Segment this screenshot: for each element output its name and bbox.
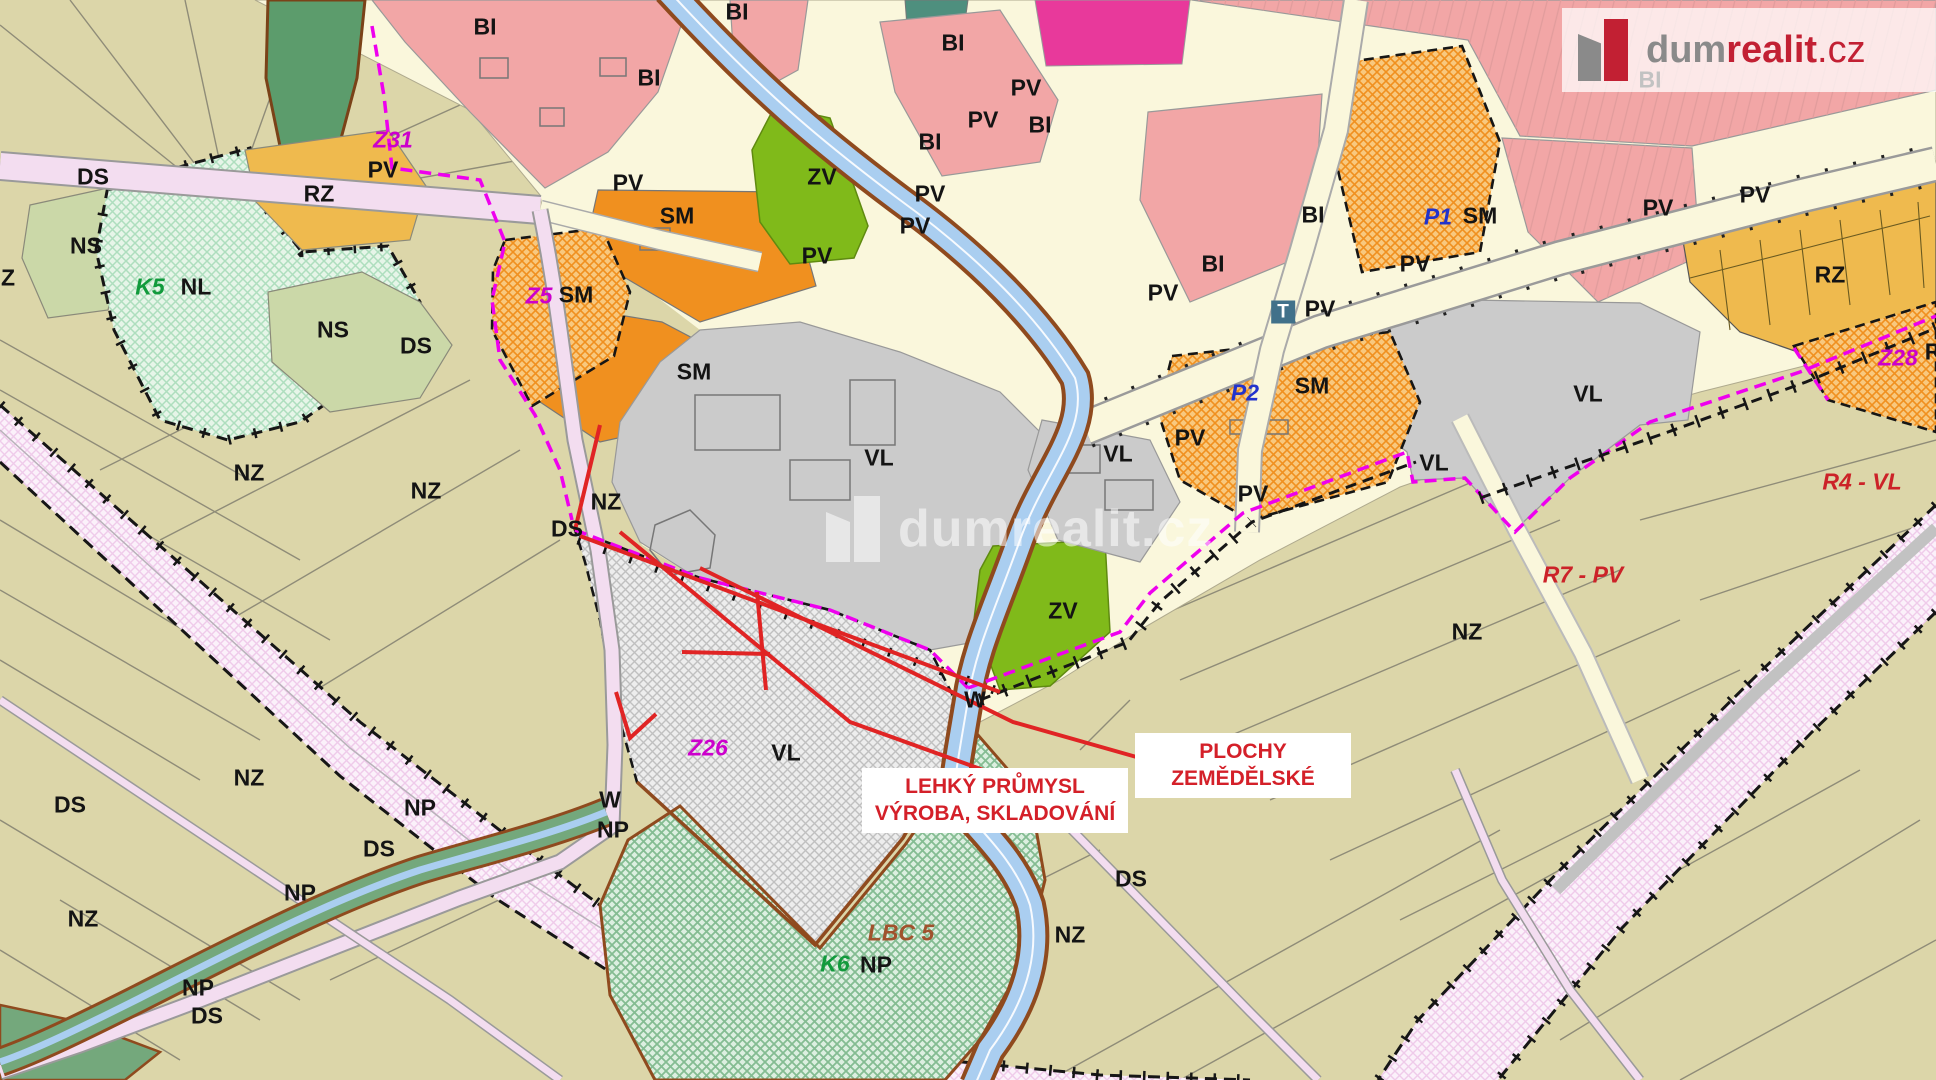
annotation-agriculture-line2: ZEMĚDĚLSKÉ xyxy=(1143,765,1343,792)
map-canvas xyxy=(0,0,1936,1080)
zone-magenta xyxy=(1035,0,1190,66)
annotation-industry: LEHKÝ PRŮMYSL VÝROBA, SKLADOVÁNÍ xyxy=(862,768,1128,833)
logo-text-cz: .cz xyxy=(1817,29,1866,71)
annotation-agriculture-line1: PLOCHY xyxy=(1143,738,1343,765)
annotation-industry-line1: LEHKÝ PRŮMYSL xyxy=(870,773,1120,800)
dumrealit-logo: dumrealit.cz xyxy=(1562,8,1936,92)
logo-text-dum: dum xyxy=(1646,29,1726,71)
annotation-industry-line2: VÝROBA, SKLADOVÁNÍ xyxy=(870,800,1120,827)
dumrealit-logo-text: dumrealit.cz xyxy=(1646,31,1866,69)
annotation-agriculture: PLOCHY ZEMĚDĚLSKÉ xyxy=(1135,733,1351,798)
zone-p1-sm xyxy=(1336,46,1500,272)
zoning-map[interactable]: DSNSK5NLRZNSDSZNZNZNZDSZ31PVPVSMZ5SMSMZV… xyxy=(0,0,1936,1080)
dumrealit-logo-icon xyxy=(1578,19,1634,81)
logo-text-realit: realit xyxy=(1726,29,1817,71)
